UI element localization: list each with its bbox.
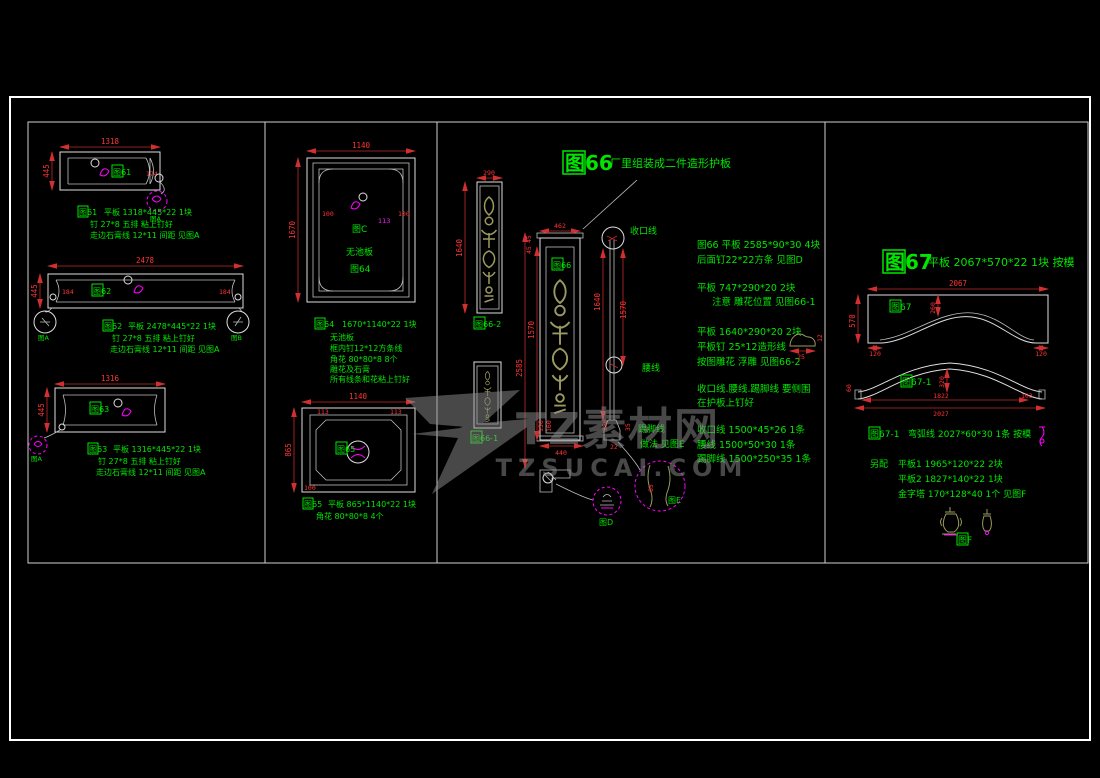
fig66-note3-3: 按图雕花 浮雕 见图66-2 [697,356,801,368]
fig66-dim-outer: 2585 [515,359,524,377]
fig63-section: 图63 图A 1316 445 图63 平板 1316*445*22 1块 钉 … [29,374,206,477]
fig66-dim-top1: 45 [525,235,533,243]
fig61-dim-end: 174 [146,170,158,178]
fig65-note-2: 角花 80*80*8 4个 [316,511,384,521]
fig67-dim-bottom: 2027 [933,410,949,418]
detail-e-dim: 65 [647,484,655,492]
fig66-panel-a-height: 1640 [455,238,464,257]
fig62-label: 图62 [93,287,111,296]
fig64-note-tag: 图64 [316,320,334,329]
watermark-brand: TZ素材网 [516,404,720,455]
fig67-dim-arc-right: 103 [1021,392,1033,400]
fig61-note-3: 走边石膏线 12*11 间距 见图A [90,230,200,240]
sketch-dim-h: 12 [816,334,824,342]
fig61-note-tag: 图61 [79,208,97,217]
fig64-note-6: 所有线条和花粘上钉好 [330,374,410,384]
fig66-note3-1: 平板 1640*290*20 2块 [697,326,802,338]
fig67-dim-arc: 320 [938,376,946,388]
fig67-extra-3: 金字塔 170*128*40 1个 见图F [898,488,1026,500]
fig65-dim-corner-right: 113 [390,408,402,416]
fig67-section: 图67 平板 2067*570*22 1块 按模 图67 2067 570 26… [845,250,1074,546]
fig67-notes: 图67-1 弯弧线 2027*60*30 1条 按模 另配 平板1 1965*1… [869,427,1031,500]
fig64-section: 100 100 113 图C 无池板 图64 1140 1670 图64 167… [288,141,417,384]
cad-screenshot: 图61 174 图A 1318 445 图61 平板 1318*445*22 1… [0,0,1100,778]
fig61-dim-width: 1318 [101,137,120,146]
fig62-dimensions: 2478 445 [30,256,243,308]
watermark: TZ素材网 TZSUCAI.COM [405,390,748,494]
fig61-section: 图61 174 图A 1318 445 图61 平板 1318*445*22 1… [42,137,200,240]
fig67-dim-br: 120 [1035,350,1047,358]
fig62-dim-height: 445 [30,284,39,298]
detail-circle-d: 图D [593,487,621,527]
fig62-dim-width: 2478 [136,256,155,265]
fig66-profile-dim-right: 1570 [619,300,628,319]
fig61-label: 图61 [113,168,131,177]
watermark-domain: TZSUCAI.COM [496,454,749,482]
fig66-label-yaoxian: 腰线 [642,362,660,374]
fig66-note2-2: 注意 雕花位置 见图66-1 [712,296,816,308]
fig61-note-1: 平板 1318*445*22 1块 [104,207,192,217]
fig67-extra-1: 平板1 1965*120*22 2块 [898,458,1003,470]
fig62-note-1: 平板 2478*445*22 1块 [128,321,216,331]
fig62-dim-end-right: 184 [219,288,231,296]
fig64-dim-corner-left: 100 [322,210,334,218]
fig65-dim-height: 865 [284,443,293,457]
fig63-note-2: 钉 27*8 五排 粘上钉好 [98,456,181,466]
fig64-note-3: 框内钉12*12方条线 [330,343,402,353]
fig67-title-text: 平板 2067*570*22 1块 按模 [928,255,1074,269]
detail-d-label: 图D [599,518,613,527]
fig62-section: 184 184 图62 图A 图B 2478 445 图62 平板 2478*4… [30,256,249,354]
fig67-title-tag: 图67 [885,250,933,274]
fig67-shape2-label: 图67-1 [902,377,931,388]
fig66-dim-inner: 1570 [527,320,536,339]
fig64-dim-corner-right: 100 [398,210,410,218]
fig66-panel-a-width: 290 [483,169,495,177]
fig66-note1-2: 后面钉22*22方条 见图D [697,254,803,266]
fig67-note-text: 弯弧线 2027*60*30 1条 按模 [908,428,1031,440]
fig67-shape1-label: 图67 [891,302,911,313]
figf-ornaments: 图F [941,507,992,546]
fig65-notes: 图65 平板 865*1140*22 1块 角花 80*80*8 4个 [303,498,416,521]
cad-sheet: 图61 174 图A 1318 445 图61 平板 1318*445*22 1… [0,0,1100,778]
fig62-notes: 图62 平板 2478*445*22 1块 钉 27*8 五排 粘上钉好 走边石… [103,320,220,354]
fig66-note4-1: 收口线.腰线.踢脚线 要侧围 [697,383,811,395]
fig67-dim-bl: 120 [869,350,881,358]
fig64-note-2: 无池板 [330,332,354,342]
fig65-note-1: 平板 865*1140*22 1块 [328,499,416,509]
fig61-dim-height: 445 [42,164,51,178]
fig63-dim-height: 445 [37,403,46,417]
fig66-title-tag: 图66 [565,151,613,175]
fig64-dim-width: 1140 [352,141,371,150]
fig62-note-tag: 图62 [104,322,122,331]
fig66-panel-a-label: 图66-2 [475,320,501,329]
fig65-label: 图65 [337,445,355,454]
fig67-title: 图67 平板 2067*570*22 1块 按模 [883,250,1074,274]
fig64-inner-label-1: 图C [352,224,367,235]
fig62-detail-left: 图A [38,334,50,342]
fig67-dim-inner: 1822 [933,392,949,400]
fig62-drawing: 184 184 图62 图A 图B [34,274,249,342]
fig65-drawing: 图65 113 113 100 [302,408,415,492]
fig63-note-1: 平板 1316*445*22 1块 [113,444,201,454]
fig67-dim-arc-left: 60 [845,384,853,392]
fig66-note3-2: 平板钉 25*12造形线 [697,341,786,353]
fig65-dim-side: 100 [304,484,316,492]
fig63-detail-tag: 图A [31,455,43,463]
fig67-extra-title: 另配 [870,459,888,470]
fig67-dim-top: 2067 [949,279,967,288]
fig66-dim-top2: 45 [525,246,533,254]
detail-e-label: 图E [668,496,681,505]
fig61-note-2: 钉 27*8 五排 粘上钉好 [90,219,173,229]
fig63-notes: 图63 平板 1316*445*22 1块 钉 27*8 五排 粘上钉好 走边石… [88,443,206,477]
fig66-panel-mid-width: 462 [554,222,566,230]
fig64-dim-height: 1670 [288,220,297,239]
fig64-note-5: 雕花及石膏 [330,364,370,374]
fig66-label-shoukouxian: 收口线 [630,225,657,237]
fig62-note-3: 走边石膏线 12*11 间距 见图A [110,344,220,354]
fig63-note-3: 走边石膏线 12*11 间距 见图A [96,467,206,477]
detail-f-label: 图F [958,535,972,546]
fig63-label: 图63 [91,405,109,414]
fig63-note-tag: 图63 [89,445,107,454]
fig66-profile-dim-left: 1640 [593,292,602,311]
fig64-note-1: 1670*1140*22 1块 [342,319,417,329]
fig67-dim-left: 570 [848,314,857,328]
fig64-inner-label-2: 无池板 [346,246,373,258]
fig63-dim-width: 1316 [101,374,120,383]
fig64-inner-label-3: 图64 [350,264,371,275]
fig67-dim-mid: 260 [929,302,937,314]
fig65-dim-corner-left: 113 [317,408,329,416]
fig65-section: 图65 113 113 100 1140 865 图65 平板 865*1140… [284,392,416,521]
fig64-dim-ornament: 113 [378,217,390,225]
fig64-note-4: 角花 80*80*8 8个 [330,354,398,364]
fig65-note-tag: 图65 [304,500,322,509]
fig62-note-2: 钉 27*8 五排 粘上钉好 [112,333,195,343]
fig61-notes: 图61 平板 1318*445*22 1块 钉 27*8 五排 粘上钉好 走边石… [78,206,200,240]
fig65-dimensions: 1140 865 [284,392,415,492]
fig62-detail-right: 图B [231,334,242,342]
fig64-drawing: 100 100 113 图C 无池板 图64 [307,158,415,302]
fig66-title-text: 厂里组装成二件造形护板 [610,156,731,170]
fig67-shape1: 图67 2067 570 260 120 120 [848,279,1048,358]
fig66-title: 图66 厂里组装成二件造形护板 [563,151,731,229]
fig64-notes: 图64 1670*1140*22 1块 无池板 框内钉12*12方条线 角花 8… [315,318,417,384]
fig66-panel-a: 290 1640 图66-2 [455,169,502,329]
fig67-extra-2: 平板2 1827*140*22 1块 [898,473,1003,485]
fig66-note1-1: 图66 平板 2585*90*30 4块 [697,239,821,251]
fig65-dim-width: 1140 [349,392,368,401]
sketch-dim-w: 25 [797,353,805,361]
fig66-note2-1: 平板 747*290*20 2块 [697,282,796,294]
fig67-note-tag: 图67-1 [870,429,899,440]
fig62-dim-end-left: 184 [62,288,74,296]
fig66-panel-mid-label: 图66 [553,261,571,270]
